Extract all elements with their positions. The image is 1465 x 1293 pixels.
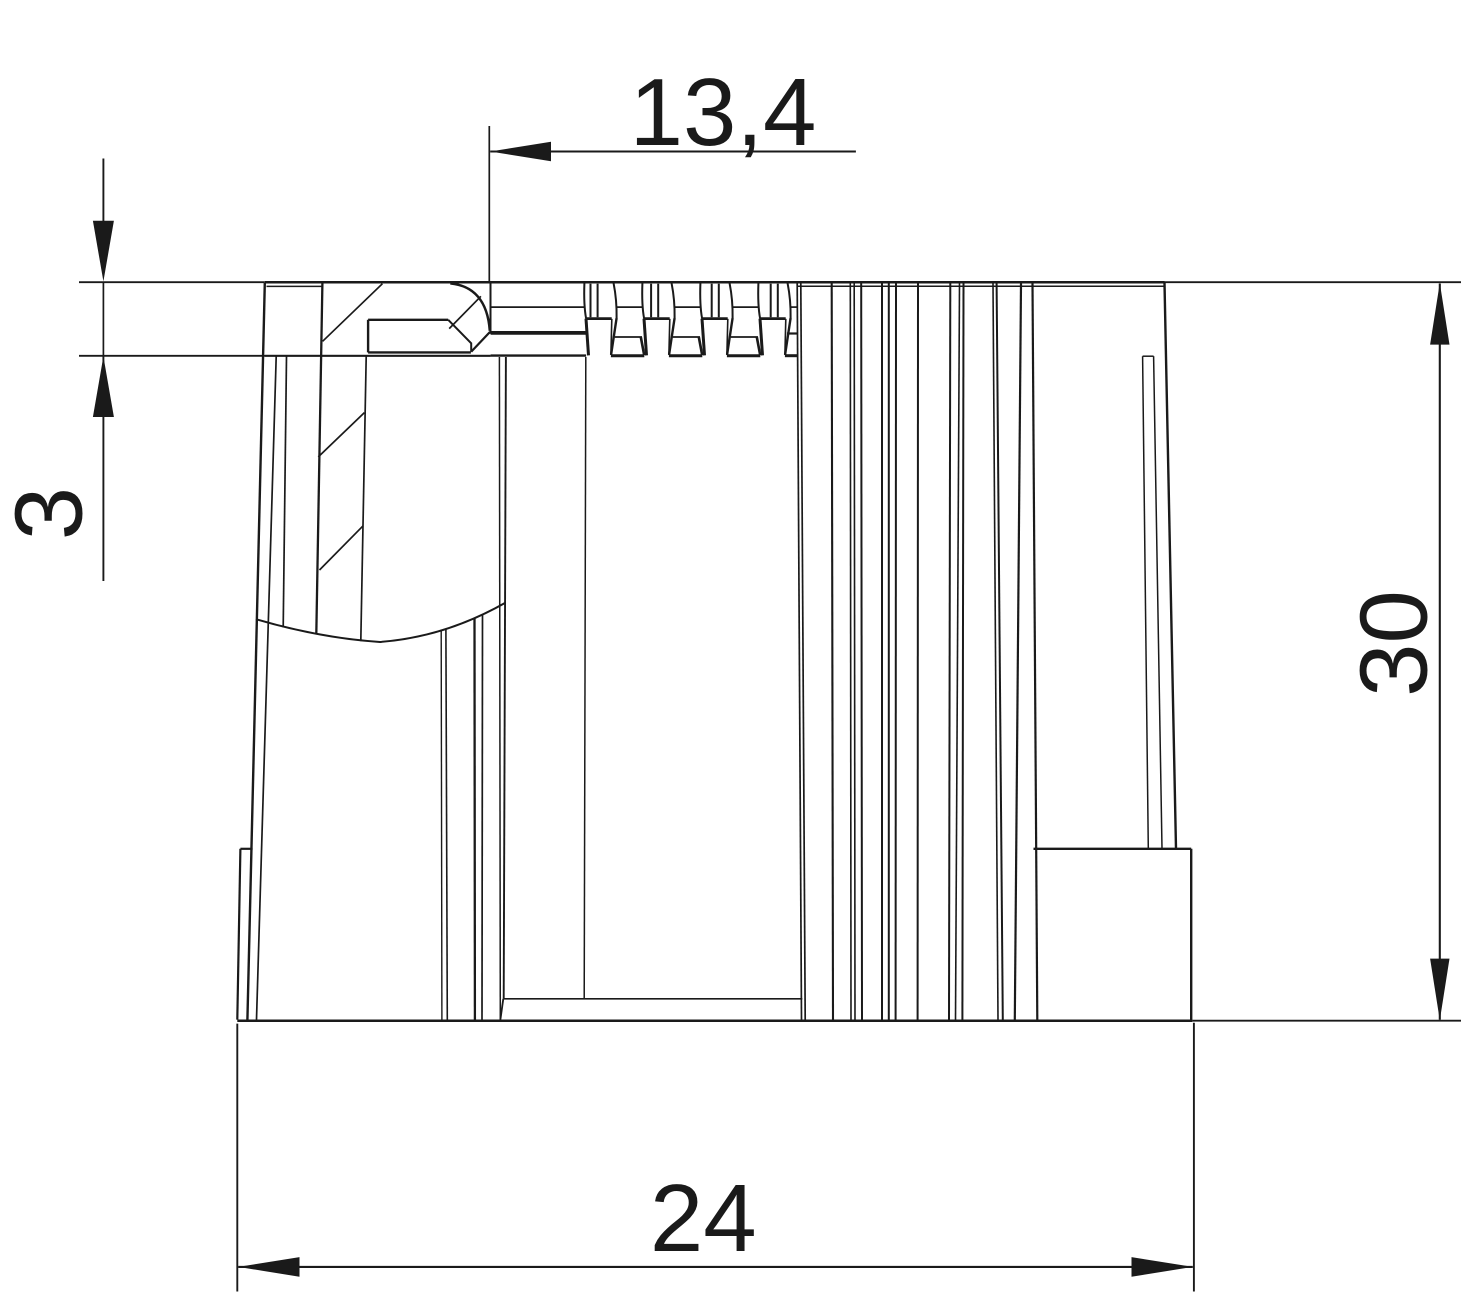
svg-text:13,4: 13,4 bbox=[630, 59, 817, 166]
svg-text:24: 24 bbox=[650, 1165, 757, 1272]
svg-text:30: 30 bbox=[1340, 590, 1447, 697]
svg-text:3: 3 bbox=[0, 487, 103, 540]
